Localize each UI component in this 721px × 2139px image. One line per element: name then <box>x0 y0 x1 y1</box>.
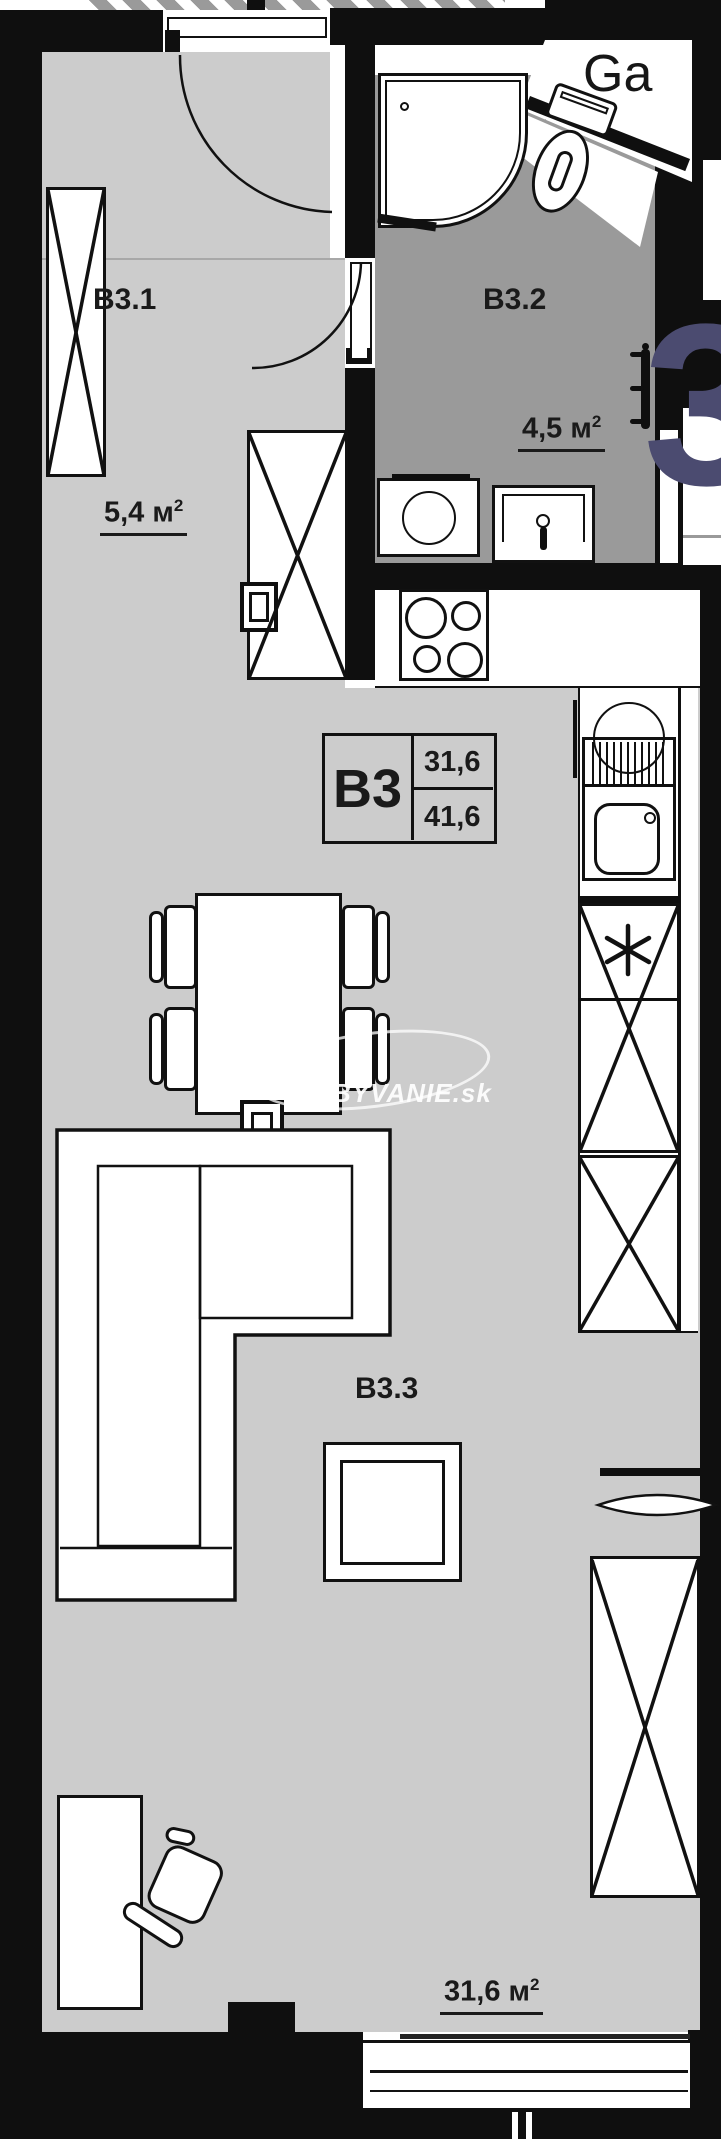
towel-radiator-knob <box>630 352 644 357</box>
wall-left <box>0 10 42 2139</box>
shower-top-band <box>375 45 545 75</box>
stove-burner <box>451 601 481 631</box>
area-value: 31,6 <box>444 1976 500 2008</box>
room-label-b33: B3.3 <box>355 1372 418 1406</box>
cabinet-hall <box>247 430 348 680</box>
area-unit: м <box>152 497 173 529</box>
fridge-shelf-line <box>578 998 680 1001</box>
wardrobe-hall <box>46 187 106 477</box>
legend-divider-h <box>414 787 493 790</box>
window-mullion <box>526 2112 532 2139</box>
chair-back <box>149 911 164 983</box>
counter-edge <box>573 700 577 778</box>
chair-back <box>375 911 390 983</box>
area-unit: м <box>570 413 591 445</box>
washing-machine-top <box>392 474 470 481</box>
wall-bottom-pillar <box>228 2002 295 2032</box>
kitchen-sink-divider <box>582 784 676 787</box>
cabinet-tall-right <box>578 1155 680 1333</box>
wall-bottom-left <box>0 2032 363 2139</box>
wall-bottom-right-corner <box>688 2030 721 2110</box>
kitchen-pot <box>593 702 665 774</box>
stove-burner <box>413 645 441 673</box>
legend-area-top: 31,6 <box>424 746 480 779</box>
right-edge-gap <box>703 160 721 300</box>
chair <box>164 1007 197 1091</box>
shower-drain <box>400 102 409 111</box>
area-label-b31: 5,4 м2 <box>100 496 187 536</box>
area-label-b33: 31,6 м2 <box>440 1975 543 2015</box>
floor-plan: Ga <box>0 0 721 2139</box>
wall-lining <box>330 45 345 258</box>
dining-table <box>195 893 342 1115</box>
area-sup: 2 <box>174 496 183 515</box>
towel-radiator-knob <box>630 419 644 424</box>
window-frame-line <box>370 2090 688 2092</box>
chair <box>342 1007 375 1091</box>
bathroom-sink-faucet <box>540 527 547 550</box>
shaft <box>660 430 678 563</box>
chair-back <box>375 1013 390 1085</box>
window-sill-line <box>400 2034 690 2039</box>
window-frame-line <box>370 2070 688 2073</box>
area-unit: м <box>509 1976 530 2008</box>
bathroom-sink-faucet-head <box>536 514 550 528</box>
shaft-box-inner <box>249 592 269 622</box>
room-label-b31: B3.1 <box>93 283 156 317</box>
high-chair-inner <box>251 1112 273 1136</box>
stove-burner <box>405 597 447 639</box>
area-value: 5,4 <box>104 497 144 529</box>
area-value: 4,5 <box>522 413 562 445</box>
neighbor-slab <box>683 408 721 565</box>
chair <box>342 905 375 989</box>
chair-back <box>149 1013 164 1085</box>
entrance-door <box>167 17 327 38</box>
legend-unit-code: B3 <box>333 758 402 820</box>
wardrobe-bottom-right <box>590 1556 700 1898</box>
neighbor-slab-line <box>683 535 721 538</box>
wall-bath-bottom <box>375 563 700 590</box>
balcony-window <box>363 2040 690 2108</box>
towel-radiator-cap <box>642 343 649 350</box>
towel-radiator-knob <box>630 386 644 391</box>
fridge <box>578 903 680 1153</box>
kitchen-sink-drain <box>644 812 656 824</box>
wall-bottom-band <box>363 2108 721 2139</box>
legend: B3 31,6 41,6 <box>322 733 497 844</box>
chair <box>164 905 197 989</box>
window-mullion <box>512 2112 518 2139</box>
area-label-b32: 4,5 м2 <box>518 412 605 452</box>
radiator-line <box>600 1468 717 1476</box>
washing-machine-drum <box>402 491 456 545</box>
bathroom-door-hinge <box>346 348 372 364</box>
legend-area-bottom: 41,6 <box>424 801 480 834</box>
area-sup: 2 <box>530 1975 539 1994</box>
wall-right-lower <box>700 563 721 2139</box>
room-label-b32: B3.2 <box>483 283 546 317</box>
area-sup: 2 <box>592 412 601 431</box>
coffee-table-inner <box>340 1460 445 1565</box>
stove-burner <box>447 642 483 678</box>
entrance-door-hinge <box>165 30 180 52</box>
